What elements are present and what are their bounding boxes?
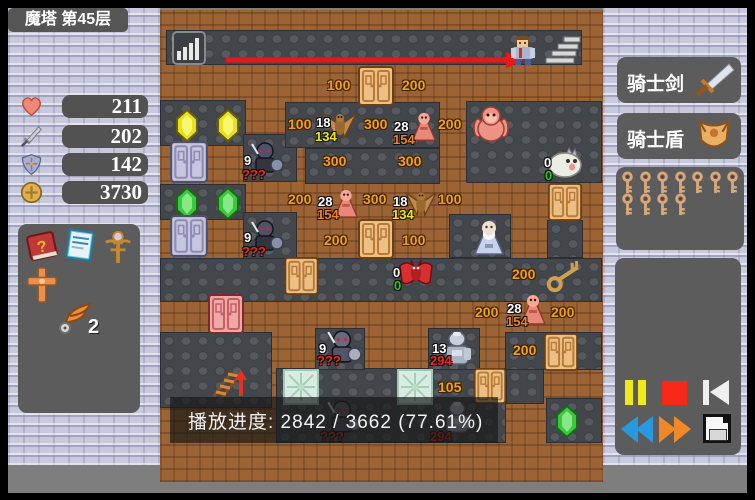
gold-value: 3730 <box>62 181 148 204</box>
skip-to-start-button[interactable] <box>703 380 729 405</box>
floor-label: 魔塔 第45层 <box>8 8 128 32</box>
game-map: 1002001003002003003002003001002001002002… <box>160 10 603 482</box>
equipment-shield: 骑士盾 <box>617 113 741 159</box>
map-cost-label: 200 <box>324 232 347 248</box>
gold-row: 3730 <box>18 181 148 205</box>
map-cost-label: 100 <box>402 232 425 248</box>
rewind-icon <box>636 416 653 443</box>
hp-row: 211 <box>18 95 148 119</box>
monster-silverknight: 13294 <box>440 330 474 368</box>
door-orange <box>283 257 320 295</box>
attack-value: 202 <box>62 125 148 148</box>
yellow-key-icon <box>655 171 670 195</box>
yellow-key-icon <box>655 193 670 217</box>
app-window: 魔塔 第45层 211 202 142 3730 ? <box>8 8 747 493</box>
monster-stat-label: 134 <box>315 130 337 143</box>
monster-stat-label: ??? <box>242 245 266 258</box>
keys-panel <box>616 167 744 250</box>
map-cost-label: 105 <box>438 379 461 395</box>
monster-stat-label: 0 <box>394 279 401 292</box>
key-gold <box>544 261 584 292</box>
monster-stat-label: 134 <box>392 208 414 221</box>
map-cost-label: 200 <box>475 304 498 320</box>
map-cost-label: 300 <box>363 191 386 207</box>
progress-overlay: 播放进度: 2842 / 3662 (77.61%) <box>170 397 498 443</box>
yellow-key-icon <box>638 171 653 195</box>
floor-tile-region <box>547 220 583 258</box>
fast-forward-icon <box>674 416 691 443</box>
yellow-key-icon <box>673 193 688 217</box>
equipment-sword: 骑士剑 <box>617 57 741 103</box>
stop-button[interactable] <box>662 381 687 405</box>
monster-wizard <box>470 218 508 258</box>
monster-stat-label: 0 <box>545 169 552 182</box>
monster-grayknight: 9??? <box>324 328 362 366</box>
door-red <box>207 294 245 334</box>
defense-value: 142 <box>62 153 148 176</box>
monster-stat-label: 294 <box>430 354 452 367</box>
pause-bar <box>638 380 646 405</box>
left-sidebar: 魔塔 第45层 211 202 142 3730 ? <box>8 8 160 465</box>
door-orange <box>547 183 583 221</box>
monster-book-icon[interactable]: ? <box>24 230 60 264</box>
map-cost-label: 100 <box>327 77 350 93</box>
monster-slime: 00 <box>546 146 582 178</box>
shield-icon <box>20 153 43 176</box>
floppy-label <box>709 429 727 441</box>
door-orange <box>358 219 394 259</box>
playback-panel <box>615 258 741 455</box>
door-blue <box>170 215 208 257</box>
door-blue <box>170 141 208 183</box>
sword-icon <box>20 125 43 148</box>
monster-stat-label: 154 <box>393 133 415 146</box>
map-cost-label: 200 <box>288 191 311 207</box>
monster-priest: 28154 <box>331 186 361 222</box>
monster-stat-label: ??? <box>242 168 266 181</box>
monster-priest: 28154 <box>408 110 440 144</box>
floor-tile-region <box>506 368 544 404</box>
map-cost-label: 300 <box>364 116 387 132</box>
knight-sword-icon <box>693 61 735 99</box>
monster-stat-label: 9 <box>244 231 251 244</box>
skip-triangle-icon <box>710 380 729 405</box>
monster-darkknight: 9??? <box>248 218 284 254</box>
cross-icon[interactable] <box>26 266 58 304</box>
yellow-key-icon <box>620 193 635 217</box>
monster-darkknight: 9??? <box>248 140 284 176</box>
yellow-key-icon <box>725 171 740 195</box>
attack-row: 202 <box>18 125 148 149</box>
monster-stat-label: ??? <box>317 354 341 367</box>
arrow-up-small <box>234 370 248 398</box>
monster-stat-label: 9 <box>244 154 251 167</box>
hp-value: 211 <box>62 95 148 118</box>
fast-forward-button[interactable] <box>659 416 693 443</box>
shield-name: 骑士盾 <box>627 125 684 152</box>
gem-green <box>556 405 578 438</box>
floppy-notch <box>723 414 731 423</box>
yellow-key-icon <box>690 171 705 195</box>
door-orange <box>543 333 579 371</box>
map-cost-label: 300 <box>398 153 421 169</box>
monster-stat-label: 18 <box>316 116 330 129</box>
stairs <box>544 35 582 66</box>
monster-stat-label: 154 <box>317 208 339 221</box>
map-cost-label: 200 <box>551 304 574 320</box>
monster-redbat: 00 <box>398 258 434 291</box>
feather-count: 2 <box>88 316 99 339</box>
rewind-button[interactable] <box>621 416 655 443</box>
monster-moth: 18134 <box>404 186 438 222</box>
skip-bar <box>703 380 709 405</box>
right-sidebar: 骑士剑 骑士盾 <box>603 8 747 465</box>
items-panel: ? 2 <box>18 224 140 413</box>
defense-row: 142 <box>18 153 148 177</box>
scepter-icon[interactable] <box>102 228 134 266</box>
coin-icon <box>20 181 43 204</box>
map-cost-label: 100 <box>288 116 311 132</box>
gem-yellow <box>217 109 239 142</box>
door-orange <box>358 66 394 106</box>
knight-shield-icon <box>693 117 735 155</box>
heart-icon <box>20 95 43 118</box>
save-button[interactable] <box>703 414 731 443</box>
gem-yellow <box>176 109 198 142</box>
notebook-icon[interactable] <box>62 228 98 262</box>
monster-priest: 28154 <box>517 292 549 328</box>
stairs-up-icon <box>172 31 206 65</box>
map-cost-label: 300 <box>323 153 346 169</box>
map-cost-label: 200 <box>513 342 536 358</box>
map-cost-label: 200 <box>512 266 535 282</box>
sword-name: 骑士剑 <box>627 69 684 96</box>
yellow-key-icon <box>638 193 653 217</box>
pause-button[interactable] <box>625 380 647 405</box>
pause-bar <box>625 380 633 405</box>
yellow-key-icon <box>673 171 688 195</box>
gem-green <box>217 187 239 220</box>
map-cost-label: 200 <box>402 77 425 93</box>
monster-ape <box>473 104 509 143</box>
yellow-key-icon <box>620 171 635 195</box>
map-cost-label: 200 <box>438 116 461 132</box>
yellow-key-icon <box>708 171 723 195</box>
monster-moth: 18134 <box>322 108 358 144</box>
monster-stat-label: 154 <box>506 315 528 328</box>
map-cost-label: 100 <box>438 191 461 207</box>
hero <box>506 33 540 67</box>
